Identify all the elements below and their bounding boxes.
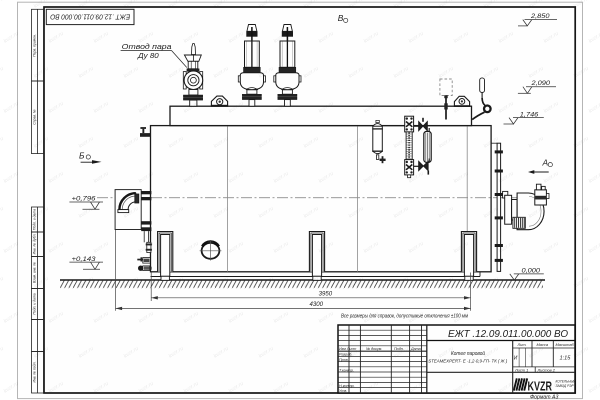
svg-text:ЕЖТ .12.09.011.00.000 ВО: ЕЖТ .12.09.011.00.000 ВО <box>448 329 568 340</box>
svg-text:КОТЕЛЬНЫЙ: КОТЕЛЬНЫЙ <box>556 379 577 383</box>
svg-text:И: И <box>514 356 518 362</box>
svg-text:Листов 2: Листов 2 <box>537 368 556 373</box>
svg-text:2,090: 2,090 <box>530 80 550 87</box>
svg-text:Взам. инв. №: Взам. инв. № <box>32 262 36 283</box>
svg-text:Дата: Дата <box>410 347 421 351</box>
svg-text:Лит.: Лит. <box>517 342 527 347</box>
svg-text:1:15: 1:15 <box>560 356 572 362</box>
svg-text:Т.контр.: Т.контр. <box>339 368 354 372</box>
svg-text:Б: Б <box>79 151 85 161</box>
svg-text:Масса: Масса <box>537 342 549 347</box>
svg-text:Все размеры для справок, допу: Все размеры для справок, допустимые откл… <box>341 314 468 320</box>
svg-text:Формат А3: Формат А3 <box>530 395 558 400</box>
svg-text:Подп. и дата: Подп. и дата <box>32 293 36 314</box>
svg-text:4300: 4300 <box>310 302 324 308</box>
svg-text:Инв. № подл.: Инв. № подл. <box>32 361 36 382</box>
svg-text:Лист 1: Лист 1 <box>514 368 528 373</box>
svg-text:+0,796: +0,796 <box>72 196 97 203</box>
svg-text:Инв. № дубл.: Инв. № дубл. <box>32 234 36 255</box>
svg-text:Н.контр.: Н.контр. <box>339 384 355 388</box>
svg-text:Котел паровой: Котел паровой <box>451 350 485 357</box>
svg-text:Перв. примен.: Перв. примен. <box>32 34 36 57</box>
svg-text:Справ. №: Справ. № <box>32 109 36 125</box>
svg-text:В: В <box>338 13 344 23</box>
svg-text:Пров.: Пров. <box>339 358 349 362</box>
svg-text:3950: 3950 <box>319 292 333 298</box>
svg-text:2,850: 2,850 <box>530 13 550 20</box>
svg-text:Утв.: Утв. <box>339 389 347 393</box>
svg-text:А: А <box>542 157 549 167</box>
svg-text:Масштаб: Масштаб <box>556 342 575 347</box>
svg-text:Ду 80: Ду 80 <box>137 51 160 60</box>
svg-text:№ докум.: № докум. <box>366 347 382 351</box>
svg-text:ЕЖТ .12.09.011.00.000 ВО: ЕЖТ .12.09.011.00.000 ВО <box>50 13 131 20</box>
